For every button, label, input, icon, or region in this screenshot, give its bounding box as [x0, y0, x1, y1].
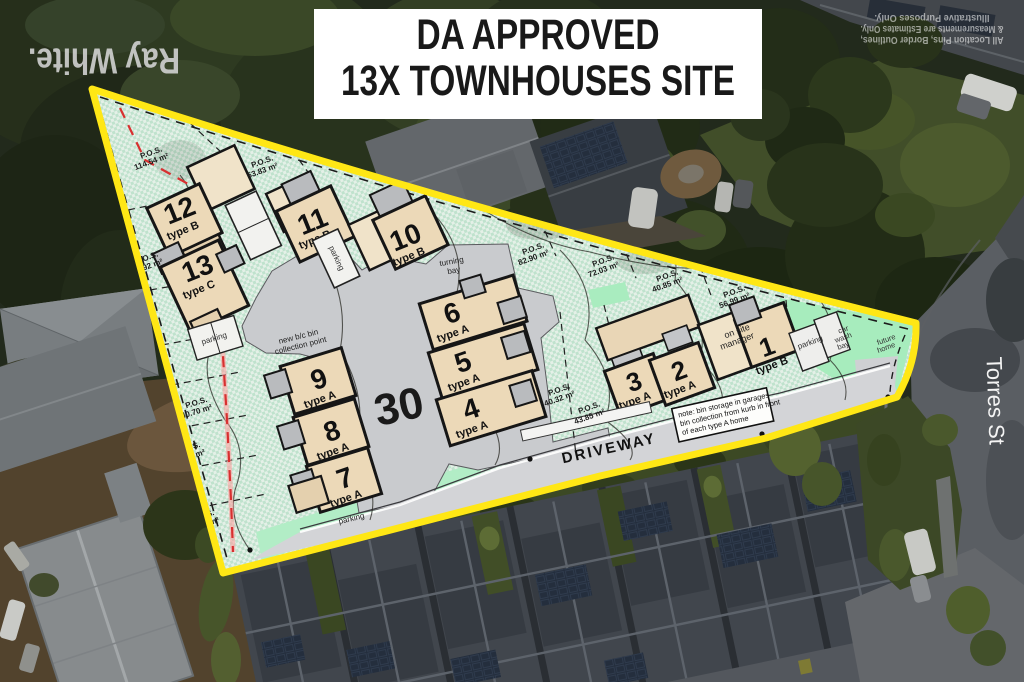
svg-text:13X TOWNHOUSES SITE: 13X TOWNHOUSES SITE [341, 57, 735, 105]
svg-text:30: 30 [370, 378, 428, 436]
svg-text:Illustrative Purposes Only.: Illustrative Purposes Only. [874, 12, 989, 23]
svg-text:All Location Pins, Border Outl: All Location Pins, Border Outlines, [860, 34, 1003, 45]
svg-text:Torres St: Torres St [981, 356, 1009, 445]
svg-text:& Measurements are Estimates O: & Measurements are Estimates Only. [860, 23, 1003, 34]
svg-text:Ray White.: Ray White. [28, 40, 180, 81]
svg-text:DA APPROVED: DA APPROVED [417, 11, 660, 59]
